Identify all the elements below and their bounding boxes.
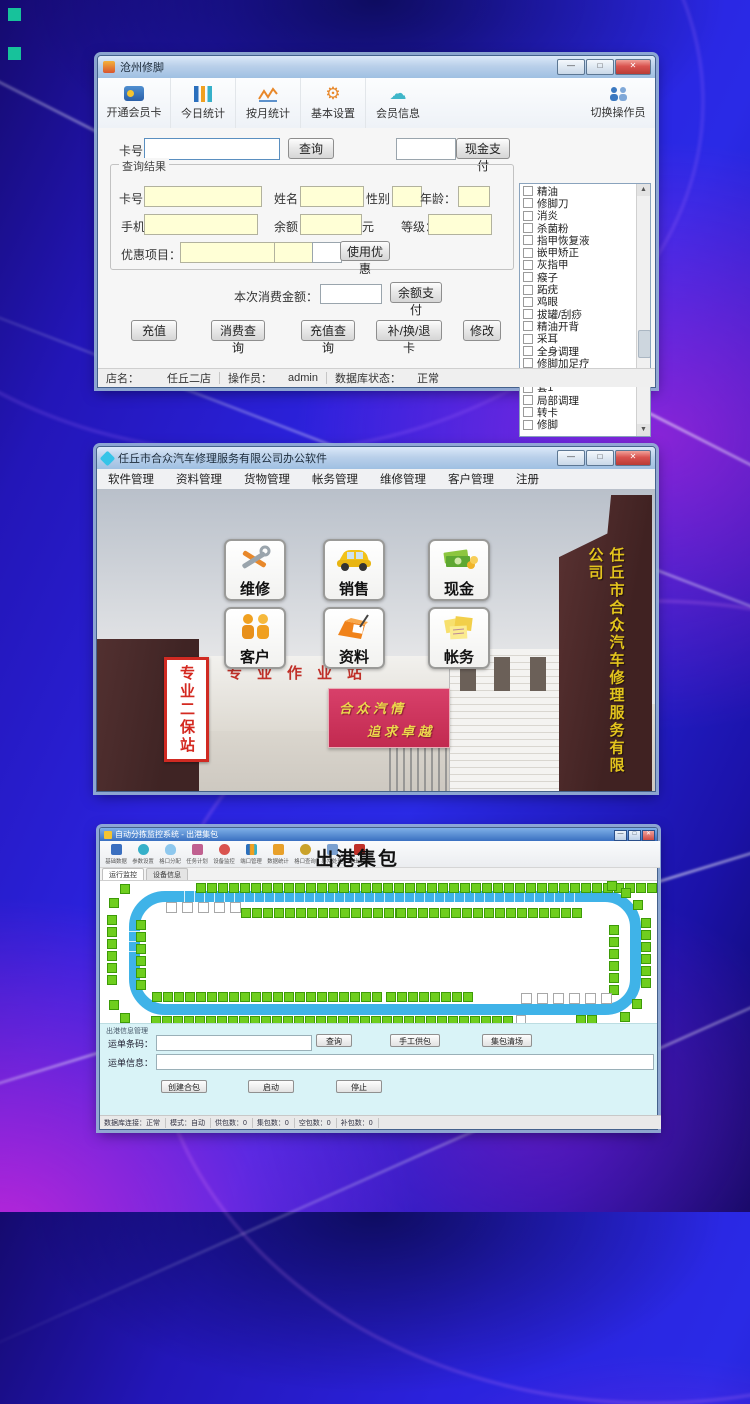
- chute-slot: [295, 992, 305, 1002]
- chute-slot: [441, 992, 451, 1002]
- chute-slot: [539, 908, 549, 918]
- chute-slot: [185, 992, 195, 1002]
- toolbar-icon: [246, 844, 257, 855]
- chute-slot: [528, 908, 538, 918]
- checkbox-icon[interactable]: [523, 260, 533, 270]
- chute-slot: [372, 883, 382, 893]
- chute-slot: [570, 883, 580, 893]
- chute-slot: [609, 937, 619, 947]
- db-status-label: 数据库状态：: [327, 370, 409, 386]
- chute-slot: [537, 883, 547, 893]
- chute-slot: [218, 992, 228, 1002]
- chute-slot: [107, 939, 117, 949]
- toolbar-icon: [138, 844, 149, 855]
- menu-data[interactable]: 资料管理: [165, 471, 233, 487]
- chute-slot: [609, 949, 619, 959]
- status-empty: 空包数：0: [299, 1118, 337, 1128]
- chute-slot: [350, 883, 360, 893]
- scroll-thumb[interactable]: [638, 330, 651, 358]
- chute-slot: [317, 883, 327, 893]
- chute-slot: [152, 992, 162, 1002]
- chute-slot: [107, 951, 117, 961]
- slogan-line2: 追求卓越: [367, 721, 435, 740]
- sorter-canvas: [100, 880, 657, 1024]
- window-title: 沧州修脚: [120, 59, 164, 75]
- wallpaper-square: [8, 47, 21, 60]
- empty-slot-row-top: [166, 902, 241, 913]
- service-item[interactable]: 修脚: [520, 419, 650, 431]
- chute-slot: [484, 908, 494, 918]
- chute-slot: [397, 992, 407, 1002]
- chute-slot: [351, 908, 361, 918]
- barcode-input[interactable]: [156, 1035, 312, 1051]
- window-repair-office: 任丘市合众汽车修理服务有限公司办公软件 — □ ✕ 软件管理 资料管理 货物管理…: [96, 446, 656, 792]
- cash-amount-input[interactable]: [396, 138, 456, 160]
- chute-slot: [384, 908, 394, 918]
- title-bar[interactable]: 沧州修脚 — □ ✕: [98, 56, 655, 79]
- operators-icon: [607, 86, 629, 101]
- chute-slot: [609, 961, 619, 971]
- chute-col-right-inner: [609, 925, 619, 995]
- empty-slot: [182, 902, 193, 913]
- chute-slot: [273, 883, 283, 893]
- chute-slot: [328, 992, 338, 1002]
- open-member-card-button[interactable]: 开通会员卡: [98, 78, 171, 128]
- chute-slot: [136, 956, 146, 966]
- empty-slot-row-bottom: [521, 993, 612, 1004]
- checkbox-icon[interactable]: [523, 272, 533, 282]
- chute-slot: [229, 883, 239, 893]
- checkbox-icon[interactable]: [523, 334, 533, 344]
- chute-slot: [419, 992, 429, 1002]
- service-list-items: 精油 修脚刀 消炎 杀菌粉: [520, 184, 650, 431]
- chute-slot: [621, 888, 631, 898]
- chute-row-inner-top-right: [396, 908, 582, 918]
- consume-amount-input[interactable]: [320, 284, 382, 304]
- checkbox-icon[interactable]: [523, 309, 533, 319]
- chute-slot: [274, 908, 284, 918]
- chute-slot: [460, 883, 470, 893]
- balance-pay-button[interactable]: 余额支付: [390, 282, 442, 303]
- chute-slot: [559, 883, 569, 893]
- recharge-query-button[interactable]: 充值查询: [301, 320, 355, 341]
- checkbox-icon[interactable]: [523, 211, 533, 221]
- status-bar: 数据库连接：正常 模式：自动 供包数：0 集包数：0 空包数：0 补包数：0: [100, 1115, 661, 1129]
- window-title: 自动分拣监控系统 - 出港集包: [115, 829, 218, 840]
- checkbox-icon[interactable]: [523, 346, 533, 356]
- chute-row-outer-top: [196, 883, 657, 893]
- chute-slot: [641, 978, 651, 988]
- balance-input[interactable]: [300, 214, 362, 235]
- query-button[interactable]: 查询: [288, 138, 334, 159]
- chute-slot: [471, 883, 481, 893]
- app-icon: [100, 450, 116, 466]
- chute-slot: [641, 954, 651, 964]
- query-button[interactable]: 查询: [316, 1034, 352, 1047]
- chute-slot: [394, 883, 404, 893]
- toolbar-button[interactable]: 设备监控: [211, 842, 238, 866]
- chute-slot: [504, 883, 514, 893]
- chute-slot: [339, 883, 349, 893]
- chute-slot: [136, 944, 146, 954]
- scrollbar[interactable]: ▲ ▼: [636, 184, 650, 436]
- chute-slot: [373, 908, 383, 918]
- chute-slot: [136, 980, 146, 990]
- card-no-input[interactable]: [144, 138, 280, 160]
- chute-slot: [207, 883, 217, 893]
- toolbar-icon: [300, 844, 311, 855]
- toolbar-label: 基础数据: [106, 856, 128, 864]
- member-info-button[interactable]: ☁ 会员信息: [366, 78, 430, 128]
- menu-register[interactable]: 注册: [505, 471, 550, 487]
- chute-slot: [493, 883, 503, 893]
- status-fed: 供包数：0: [215, 1118, 253, 1128]
- use-discount-button[interactable]: 使用优惠: [340, 241, 390, 261]
- chute-slot: [174, 992, 184, 1002]
- settings-button[interactable]: ⚙ 基本设置: [301, 78, 366, 128]
- tile-accounting[interactable]: 帐务: [428, 607, 490, 669]
- chute-slot: [418, 908, 428, 918]
- empty-slot: [553, 993, 564, 1004]
- empty-slot: [585, 993, 596, 1004]
- chute-slot: [636, 883, 646, 893]
- maximize-button[interactable]: □: [586, 450, 614, 466]
- operator-label: 操作员：: [220, 370, 280, 386]
- chute-slot: [633, 900, 643, 910]
- chute-slot: [416, 883, 426, 893]
- phone-input[interactable]: [144, 214, 258, 235]
- toolbar-label: 参数设置: [133, 856, 155, 864]
- tile-sales[interactable]: 销售: [323, 539, 385, 601]
- status-refeed: 补包数：0: [341, 1118, 379, 1128]
- empty-slot: [601, 993, 612, 1004]
- checkbox-icon[interactable]: [523, 235, 533, 245]
- toolbar-icon: [192, 844, 203, 855]
- chute-slot: [427, 883, 437, 893]
- status-bar: 店名： 任丘二店 操作员： admin 数据库状态： 正常: [98, 368, 655, 387]
- client-area: 卡号： 查询 现金支付 查询结果 卡号： 姓名： 性别： 年龄： 手机： 余额：…: [98, 128, 655, 369]
- chute-slot: [339, 992, 349, 1002]
- chute-slot: [609, 973, 619, 983]
- chute-slot: [517, 908, 527, 918]
- minimize-button[interactable]: —: [614, 830, 627, 841]
- chute-slot: [107, 975, 117, 985]
- checkbox-icon[interactable]: [523, 358, 533, 368]
- chute-slot: [109, 1000, 119, 1010]
- toolbar-icon: [111, 844, 122, 855]
- chute-slot: [647, 883, 657, 893]
- company-tower: 任丘市合众汽车修理服务有限公司: [559, 495, 652, 791]
- today-stats-button[interactable]: 今日统计: [171, 78, 236, 128]
- toolbar-button[interactable]: 数据统计: [265, 842, 292, 866]
- toolbar-label: 设备监控: [214, 856, 236, 864]
- window-sorting-monitor: 自动分拣监控系统 - 出港集包 — □ ✕ 基础数据 参数设置 格口分配: [99, 827, 658, 1130]
- recharge-button[interactable]: 充值: [131, 320, 177, 341]
- consume-query-button[interactable]: 消费查询: [211, 320, 265, 341]
- waybill-info-input[interactable]: [156, 1054, 654, 1070]
- toolbar-button[interactable]: 端口管理: [238, 842, 265, 866]
- toolbar-button[interactable]: 基础数据: [103, 842, 130, 866]
- chute-slot: [405, 883, 415, 893]
- create-package-button[interactable]: 创建合包: [161, 1080, 207, 1093]
- service-list: 精油 修脚刀 消炎 杀菌粉: [519, 183, 651, 437]
- checkbox-icon[interactable]: [523, 420, 533, 430]
- minimize-button[interactable]: —: [557, 59, 585, 75]
- chute-slot: [107, 963, 117, 973]
- customers-icon: [238, 613, 272, 641]
- clear-batch-button[interactable]: 集包清场: [482, 1034, 532, 1047]
- tab-strip: 运行监控 设备信息: [102, 868, 188, 880]
- waybill-info-label: 运单信息：: [108, 1056, 153, 1069]
- consume-amount-label: 本次消费金额：: [234, 288, 318, 305]
- chute-slot: [408, 992, 418, 1002]
- chute-slot: [136, 932, 146, 942]
- discount-label: 优惠项目：: [121, 246, 181, 263]
- chute-slot: [572, 908, 582, 918]
- page-title: 出港集包: [315, 844, 399, 871]
- title-bar[interactable]: 自动分拣监控系统 - 出港集包 — □ ✕: [100, 828, 657, 841]
- chute-slot: [252, 908, 262, 918]
- chute-slot: [284, 992, 294, 1002]
- monthly-stats-button[interactable]: 按月统计: [236, 78, 301, 128]
- chute-slot: [136, 968, 146, 978]
- status-db: 数据库连接：正常: [104, 1118, 166, 1128]
- checkbox-icon[interactable]: [523, 321, 533, 331]
- chute-slot: [361, 883, 371, 893]
- close-button[interactable]: ✕: [615, 59, 651, 75]
- checkbox-icon[interactable]: [523, 297, 533, 307]
- chute-row-inner-bottom-left: [152, 992, 382, 1002]
- chute-slot: [429, 908, 439, 918]
- chute-row-inner-top-left: [241, 908, 405, 918]
- stop-button[interactable]: 停止: [336, 1080, 382, 1093]
- chute-slot: [136, 920, 146, 930]
- chute-slot: [318, 908, 328, 918]
- chute-slot: [641, 918, 651, 928]
- service-label: 修脚: [537, 417, 558, 432]
- menu-accounting[interactable]: 帐务管理: [301, 471, 369, 487]
- window-pedicure-app: 沧州修脚 — □ ✕ 开通会员卡 今日统计 按月统计 ⚙ 基本设置 ☁ 会员信息: [97, 55, 656, 388]
- toolbar-icon: [165, 844, 176, 855]
- cash-pay-button[interactable]: 现金支付: [456, 138, 510, 159]
- chute-slot: [451, 908, 461, 918]
- empty-slot: [198, 902, 209, 913]
- checkbox-icon[interactable]: [523, 395, 533, 405]
- checkbox-icon[interactable]: [523, 186, 533, 196]
- gear-icon: ⚙: [325, 86, 340, 102]
- tile-cash[interactable]: 现金: [428, 539, 490, 601]
- car-icon: [335, 545, 373, 573]
- chute-slot: [328, 883, 338, 893]
- empty-slot: [569, 993, 580, 1004]
- waybill-form: 出港信息管理 运单条码： 查询 手工供包 集包清场 运单信息： 创建合包 启动 …: [100, 1023, 657, 1117]
- chute-slot: [196, 992, 206, 1002]
- chute-slot: [495, 908, 505, 918]
- toolbar-label: 端口管理: [241, 856, 263, 864]
- chute-slot: [482, 883, 492, 893]
- checkbox-icon[interactable]: [523, 198, 533, 208]
- chute-slot: [120, 1013, 130, 1023]
- chute-slot: [251, 992, 261, 1002]
- scroll-up-icon[interactable]: ▲: [637, 184, 650, 196]
- desktop-wallpaper: { "colors": {"track_blue": "#3fb3e8", "s…: [0, 0, 750, 1212]
- tab-monitor[interactable]: 运行监控: [102, 868, 144, 880]
- start-button[interactable]: 启动: [248, 1080, 294, 1093]
- chute-slot: [641, 966, 651, 976]
- chute-slot: [306, 992, 316, 1002]
- app-icon: [103, 61, 115, 73]
- yuan-label: 元: [362, 218, 374, 235]
- chute-slot: [581, 883, 591, 893]
- empty-slot: [166, 902, 177, 913]
- manual-feed-button[interactable]: 手工供包: [390, 1034, 440, 1047]
- chute-slot: [284, 883, 294, 893]
- barcode-label: 运单条码：: [108, 1037, 153, 1050]
- main-toolbar: 开通会员卡 今日统计 按月统计 ⚙ 基本设置 ☁ 会员信息 切换操作员: [98, 78, 655, 129]
- line-chart-icon: [258, 86, 278, 102]
- switch-operator-button[interactable]: 切换操作员: [581, 78, 655, 128]
- notes-icon: [441, 613, 477, 641]
- chute-row-inner-bottom-right: [386, 992, 473, 1002]
- discount-count-input[interactable]: [312, 242, 342, 263]
- age-input[interactable]: [458, 186, 490, 207]
- chute-slot: [607, 881, 617, 891]
- chute-slot: [550, 908, 560, 918]
- chute-slot: [449, 883, 459, 893]
- chute-slot: [361, 992, 371, 1002]
- checkbox-icon[interactable]: [523, 407, 533, 417]
- toolbar-button[interactable]: 任务计划: [184, 842, 211, 866]
- wallpaper-square: [8, 8, 21, 21]
- menu-software[interactable]: 软件管理: [97, 471, 165, 487]
- chute-slot: [438, 883, 448, 893]
- age-label: 年龄：: [420, 190, 456, 207]
- checkbox-icon[interactable]: [523, 223, 533, 233]
- app-icon: [104, 831, 112, 839]
- chute-slot: [632, 999, 642, 1009]
- chute-slot: [641, 942, 651, 952]
- chute-slot: [263, 908, 273, 918]
- close-button[interactable]: ✕: [642, 830, 655, 841]
- maximize-button[interactable]: □: [586, 59, 614, 75]
- minimize-button[interactable]: —: [557, 450, 585, 466]
- chute-slot: [463, 992, 473, 1002]
- title-bar[interactable]: 任丘市合众汽车修理服务有限公司办公软件 — □ ✕: [97, 447, 655, 470]
- chute-slot: [296, 908, 306, 918]
- scroll-down-icon[interactable]: ▼: [637, 424, 650, 436]
- chute-slot: [473, 908, 483, 918]
- chute-col-left-outer: [107, 915, 117, 985]
- discount-value-input[interactable]: [274, 242, 316, 263]
- chute-slot: [285, 908, 295, 918]
- checkbox-icon[interactable]: [523, 248, 533, 258]
- chute-slot: [218, 883, 228, 893]
- window-title: 任丘市合众汽车修理服务有限公司办公软件: [118, 450, 327, 466]
- chute-slot: [372, 992, 382, 1002]
- folder-pen-icon: [335, 613, 373, 641]
- chute-slot: [386, 992, 396, 1002]
- status-packed: 集包数：0: [257, 1118, 295, 1128]
- chute-slot: [340, 908, 350, 918]
- level-input[interactable]: [428, 214, 492, 235]
- chute-slot: [362, 908, 372, 918]
- chute-slot: [407, 908, 417, 918]
- chute-slot: [609, 925, 619, 935]
- bar-chart-icon: [194, 86, 212, 102]
- discount-item-input[interactable]: [180, 242, 278, 263]
- toolbar-icon: [273, 844, 284, 855]
- replace-card-button[interactable]: 补/换/退卡: [376, 320, 442, 341]
- chute-slot: [273, 992, 283, 1002]
- chute-slot: [440, 908, 450, 918]
- chute-slot: [262, 883, 272, 893]
- cash-icon: [440, 545, 478, 573]
- chute-slot: [109, 898, 119, 908]
- member-card-icon: [124, 86, 144, 101]
- chute-slot: [207, 992, 217, 1002]
- tile-repair[interactable]: 维修: [224, 539, 286, 601]
- modify-button[interactable]: 修改: [463, 320, 501, 341]
- chute-slot: [295, 883, 305, 893]
- toolbar-button[interactable]: 参数设置: [130, 842, 157, 866]
- chute-slot: [430, 992, 440, 1002]
- checkbox-icon[interactable]: [523, 285, 533, 295]
- maximize-button[interactable]: □: [628, 830, 641, 841]
- toolbar-button[interactable]: 格口分配: [157, 842, 184, 866]
- chute-slot: [548, 883, 558, 893]
- gender-input[interactable]: [392, 186, 422, 207]
- chute-slot: [107, 927, 117, 937]
- left-vertical-sign: 专业二保站: [164, 657, 209, 762]
- chute-slot: [196, 883, 206, 893]
- tower-vertical-text: 任丘市合众汽车修理服务有限公司: [585, 547, 627, 791]
- chute-slot: [620, 1012, 630, 1022]
- chute-col-right-outer: [641, 918, 651, 988]
- empty-slot: [537, 993, 548, 1004]
- toolbar-label: 格口分配: [160, 856, 182, 864]
- menu-repair[interactable]: 维修管理: [369, 471, 437, 487]
- slogan-line1: 合众汽情: [339, 698, 407, 717]
- menu-goods[interactable]: 货物管理: [233, 471, 301, 487]
- chute-slot: [506, 908, 516, 918]
- tile-documents[interactable]: 资料: [323, 607, 385, 669]
- toolbar-label: 格口查询: [295, 856, 317, 864]
- toolbar-label: 数据统计: [268, 856, 290, 864]
- group-legend: 查询结果: [119, 158, 169, 174]
- close-button[interactable]: ✕: [615, 450, 651, 466]
- tile-customers[interactable]: 客户: [224, 607, 286, 669]
- form-section-label: 出港信息管理: [106, 1026, 148, 1036]
- tab-devices[interactable]: 设备信息: [146, 868, 188, 880]
- chute-slot: [229, 992, 239, 1002]
- db-status-value: 正常: [409, 370, 447, 386]
- result-card-input[interactable]: [144, 186, 262, 207]
- chute-slot: [561, 908, 571, 918]
- empty-slot: [214, 902, 225, 913]
- chute-slot: [251, 883, 261, 893]
- chute-slot: [120, 884, 130, 894]
- chute-slot: [329, 908, 339, 918]
- menu-customer[interactable]: 客户管理: [437, 471, 505, 487]
- chute-slot: [641, 930, 651, 940]
- wrench-icon: [237, 545, 273, 575]
- cloud-icon: ☁: [390, 86, 407, 102]
- name-input[interactable]: [300, 186, 364, 207]
- operator-value: admin: [280, 372, 326, 384]
- toolbar-label: 任务计划: [187, 856, 209, 864]
- chute-slot: [383, 883, 393, 893]
- status-mode: 模式：自动: [170, 1118, 211, 1128]
